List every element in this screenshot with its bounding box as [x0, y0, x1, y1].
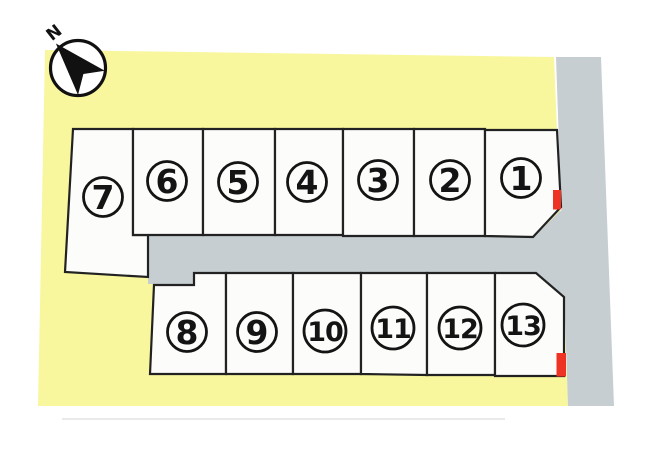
lot-number: 4	[296, 163, 319, 202]
lot-11: 11	[361, 273, 427, 375]
lot-9: 9	[226, 273, 293, 374]
red-marker-lot-13	[557, 353, 567, 377]
lot-number: 8	[176, 313, 199, 352]
lot-4: 4	[275, 129, 343, 235]
lot-number: 5	[227, 163, 250, 202]
lot-8: 8	[150, 273, 226, 374]
lot-6: 6	[133, 129, 203, 235]
lot-13: 13	[495, 273, 564, 376]
lot-5: 5	[203, 129, 275, 235]
lot-number: 11	[375, 314, 411, 345]
site-plan: 7 6 5 4 3 2 1 8 9	[0, 0, 652, 460]
lot-number: 3	[367, 161, 390, 200]
lot-number: 9	[246, 313, 269, 352]
lot-number: 7	[92, 178, 115, 217]
compass-north-label: N	[43, 21, 67, 46]
lot-2: 2	[414, 129, 485, 236]
site-plan-canvas: 7 6 5 4 3 2 1 8 9	[0, 0, 652, 460]
lot-number: 10	[307, 317, 343, 348]
lot-3: 3	[343, 129, 414, 236]
red-marker-lot-1	[553, 190, 561, 210]
lot-number: 2	[439, 161, 462, 200]
lot-number: 6	[156, 162, 179, 201]
lot-12: 12	[427, 273, 495, 375]
lot-10: 10	[293, 273, 361, 374]
lot-number: 13	[505, 311, 541, 342]
lot-number: 12	[442, 314, 478, 345]
lot-number: 1	[510, 159, 533, 198]
